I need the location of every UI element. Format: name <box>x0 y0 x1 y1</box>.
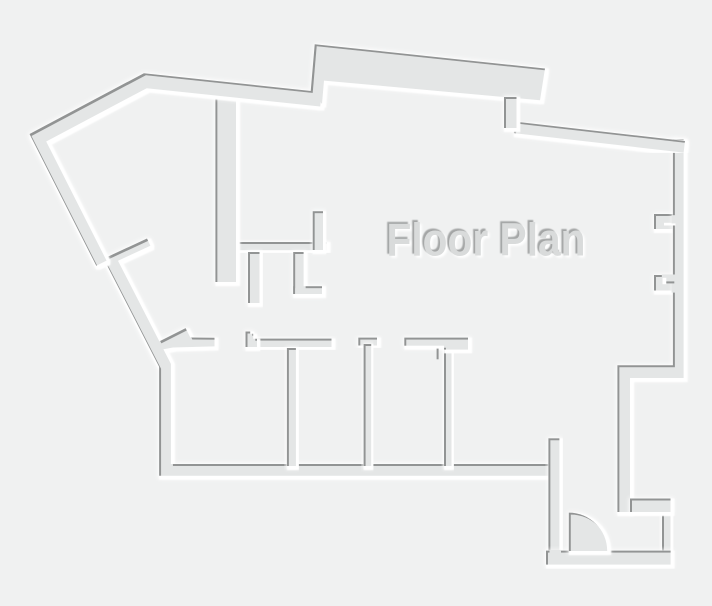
svg-text:Floor Plan: Floor Plan <box>387 214 586 266</box>
